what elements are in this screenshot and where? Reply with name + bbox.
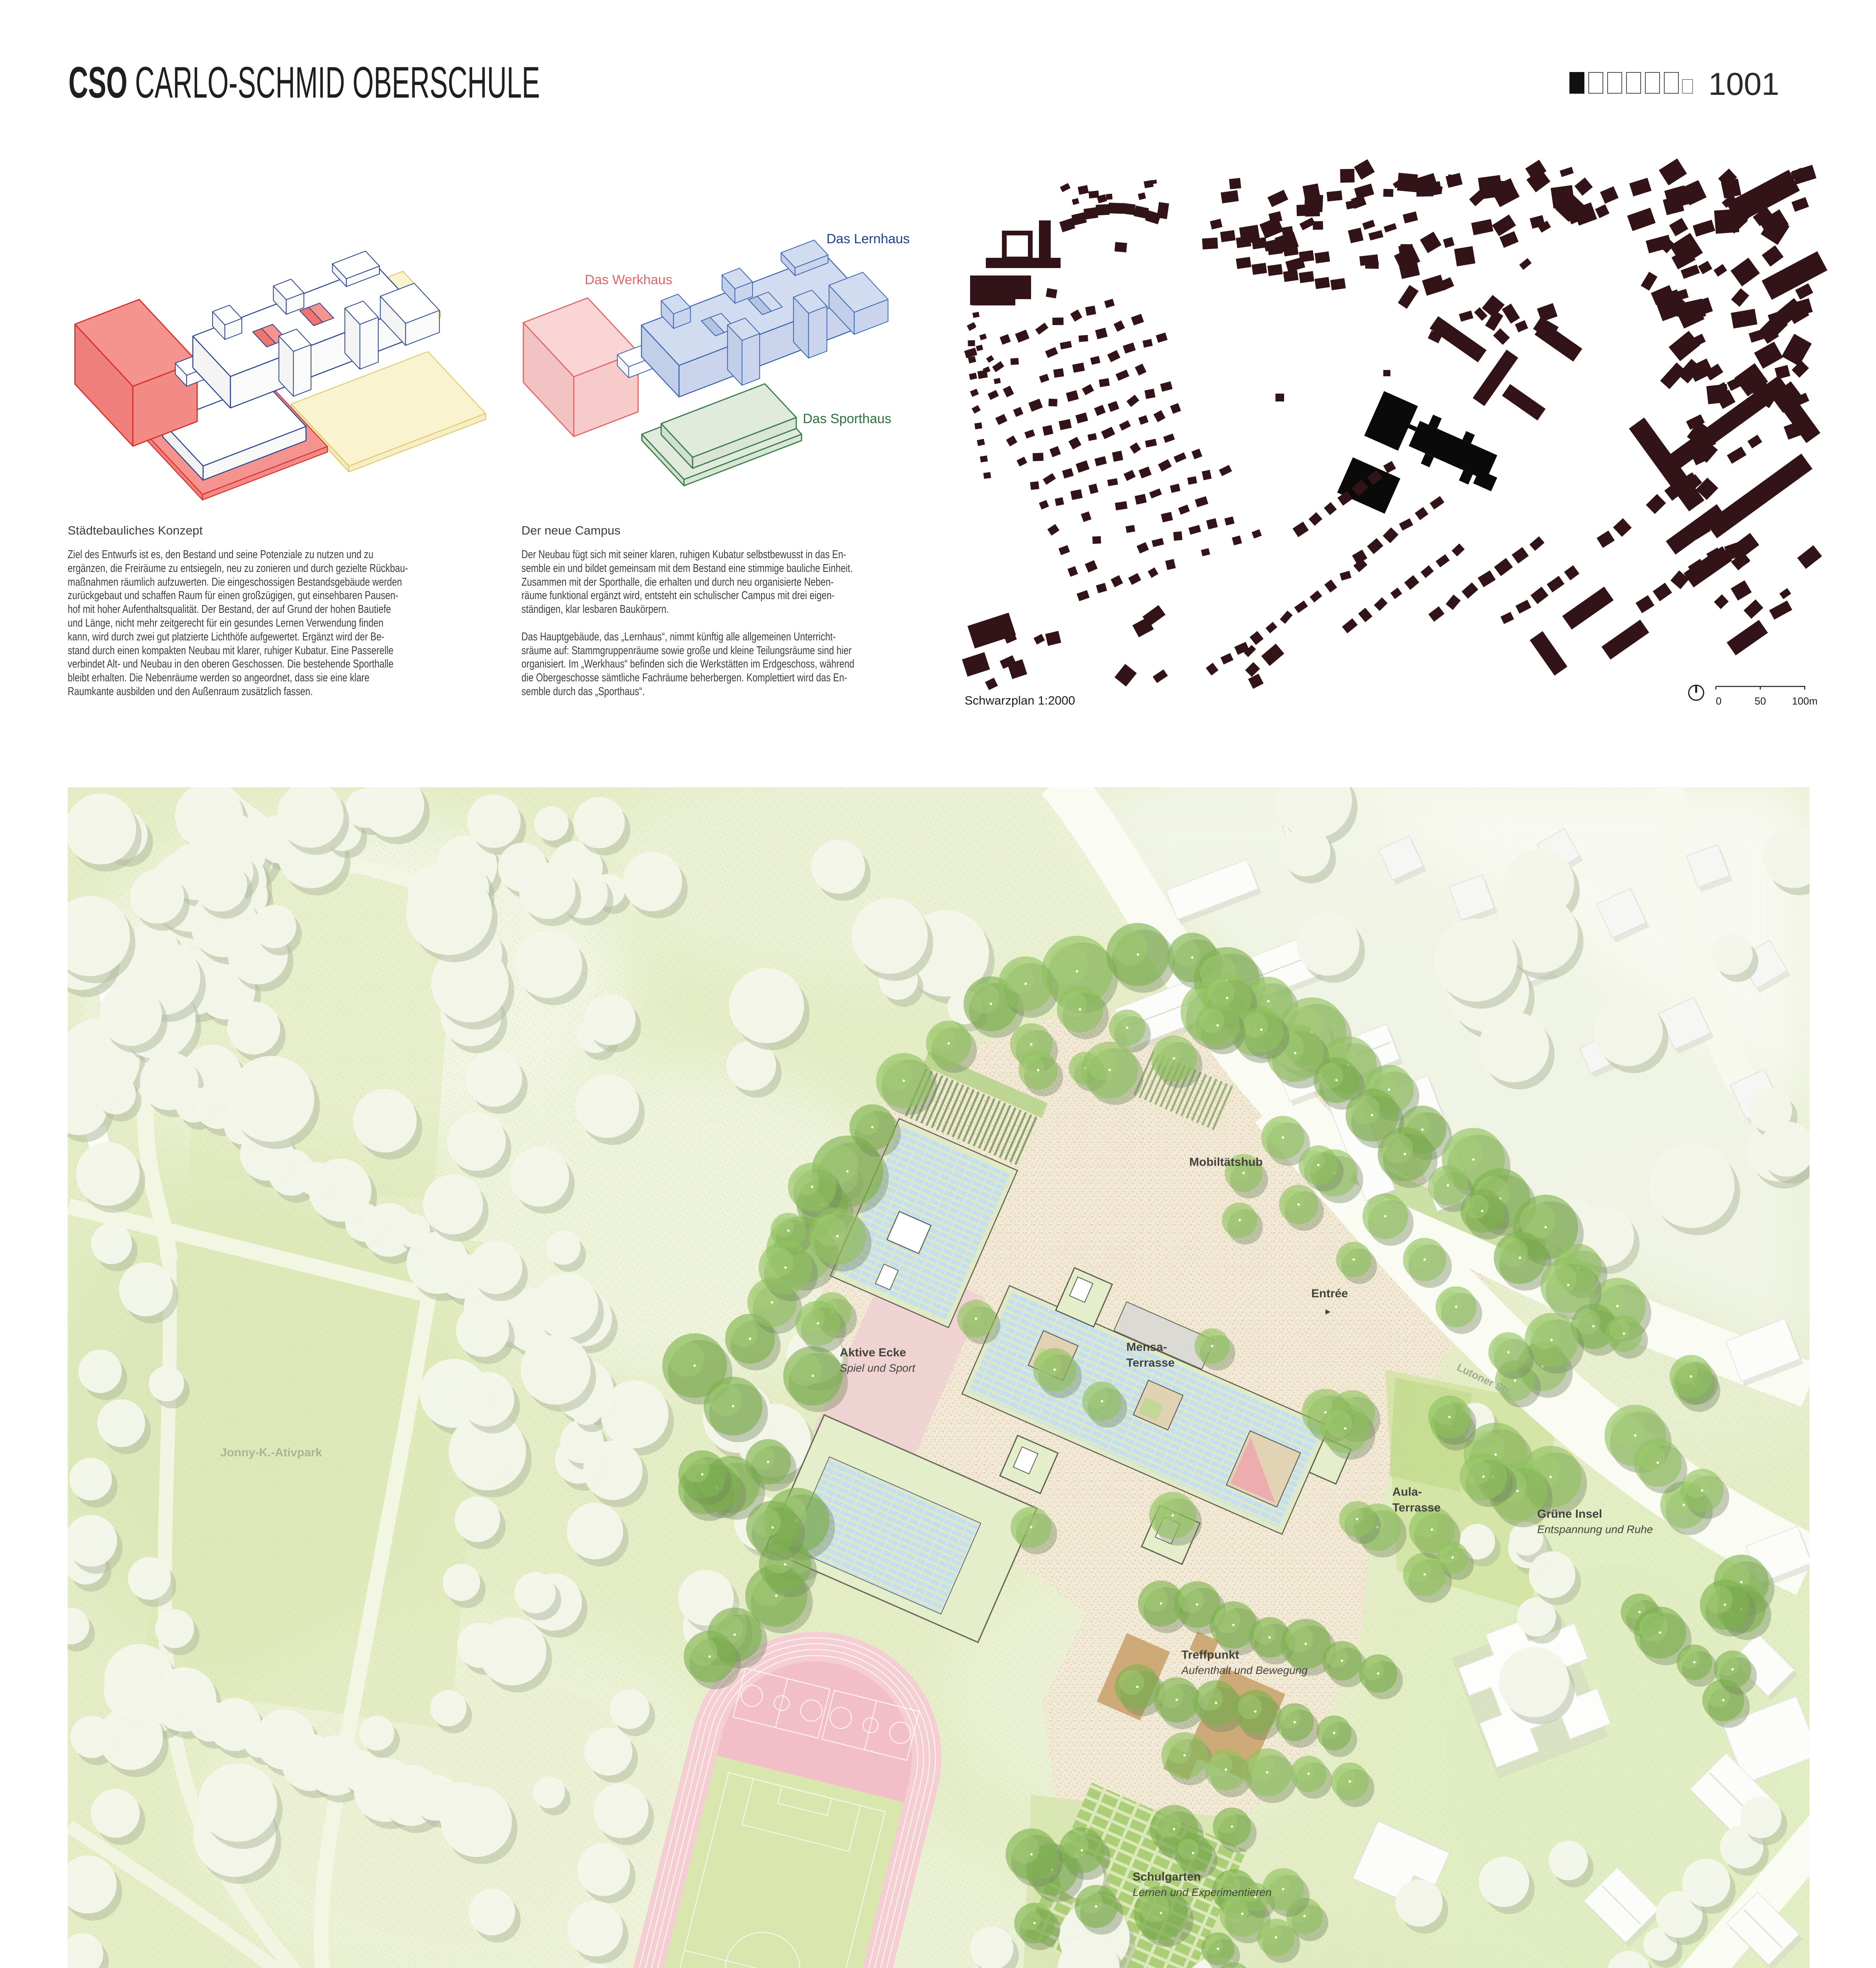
svg-text:Jonny-K.-Ativpark: Jonny-K.-Ativpark [220,1446,322,1459]
svg-text:Lernen und Experimentieren: Lernen und Experimentieren [1133,1886,1272,1898]
svg-text:Spiel und Sport: Spiel und Sport [840,1362,916,1374]
svg-text:Terrasse: Terrasse [1126,1356,1175,1369]
svg-text:Terrasse: Terrasse [1392,1501,1441,1514]
svg-text:Schulgarten: Schulgarten [1133,1870,1201,1883]
svg-text:Aktive Ecke: Aktive Ecke [840,1346,906,1359]
svg-text:Treffpunkt: Treffpunkt [1181,1648,1239,1661]
svg-text:Aufenthalt und Bewegung: Aufenthalt und Bewegung [1181,1664,1308,1676]
svg-text:Grüne Insel: Grüne Insel [1537,1507,1602,1520]
svg-text:Mobiltätshub: Mobiltätshub [1189,1156,1263,1169]
svg-text:Entrée: Entrée [1311,1287,1348,1300]
svg-text:Aula-: Aula- [1392,1485,1422,1498]
svg-text:Mensa-: Mensa- [1126,1341,1167,1354]
svg-text:Entspannung und Ruhe: Entspannung und Ruhe [1537,1523,1653,1535]
svg-text:▸: ▸ [1325,1305,1331,1317]
